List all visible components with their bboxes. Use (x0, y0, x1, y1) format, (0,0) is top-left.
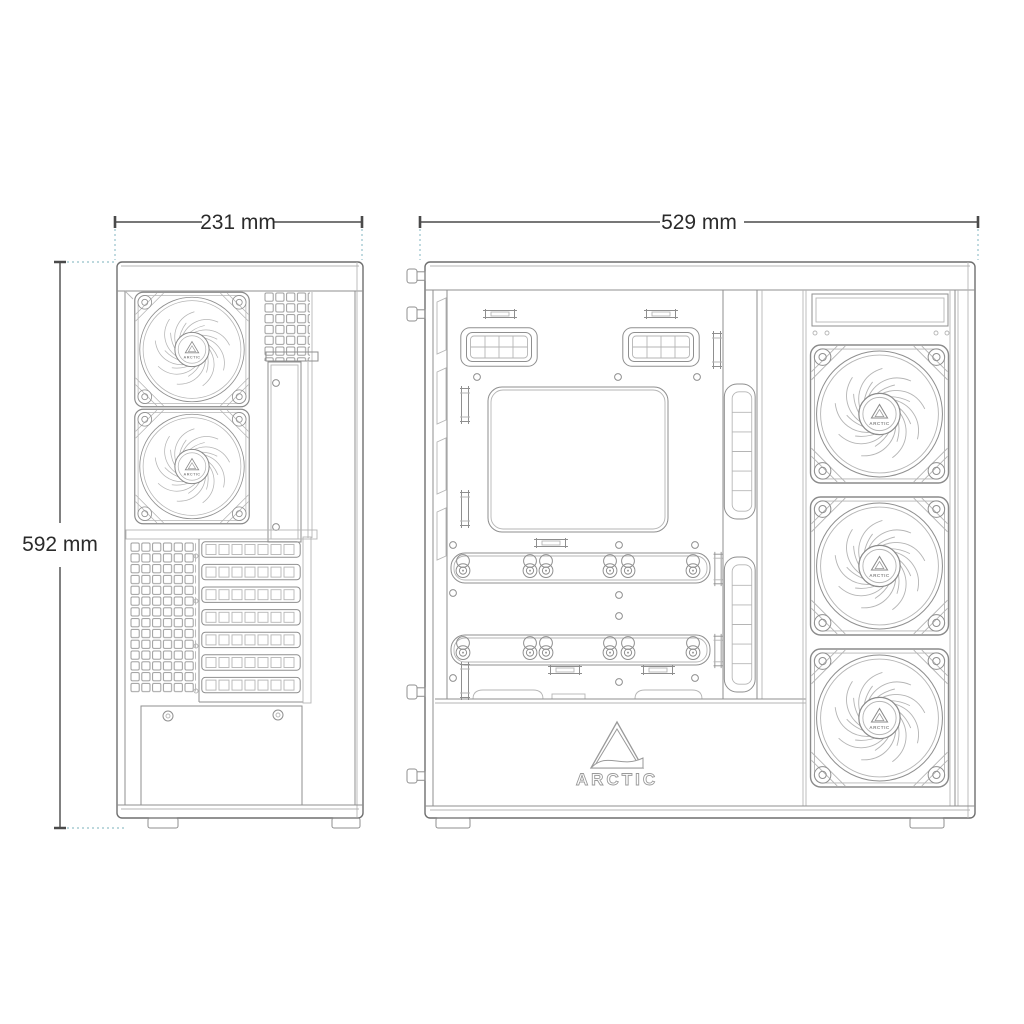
rear-fan-1 (135, 292, 249, 406)
dimension-label-depth: 529 mm (661, 211, 737, 234)
front-fan-column (803, 290, 950, 806)
rear-vent-grid-bottom (130, 542, 196, 693)
arctic-wordmark: ARCTIC (576, 770, 658, 789)
front-fan-3 (811, 649, 949, 787)
pc-case-foot (148, 818, 178, 828)
pc-case-foot (910, 818, 944, 828)
pc-case-foot (332, 818, 360, 828)
side-view: ARCTIC (407, 262, 975, 828)
rear-view (117, 262, 363, 828)
case-dimension-diagram: ARCTIC (0, 0, 1024, 1024)
rear-fan-2 (135, 409, 249, 523)
dimension-label-width: 231 mm (200, 211, 276, 234)
front-fan-1 (811, 345, 949, 483)
dimension-height: 592 mm (22, 262, 126, 828)
front-fan-2 (811, 497, 949, 635)
dimension-width: 231 mm (115, 211, 362, 260)
dimension-depth: 529 mm (420, 211, 978, 260)
rear-vent-grid-top (264, 292, 310, 361)
dimension-label-height: 592 mm (22, 533, 98, 556)
pc-case-foot (436, 818, 470, 828)
